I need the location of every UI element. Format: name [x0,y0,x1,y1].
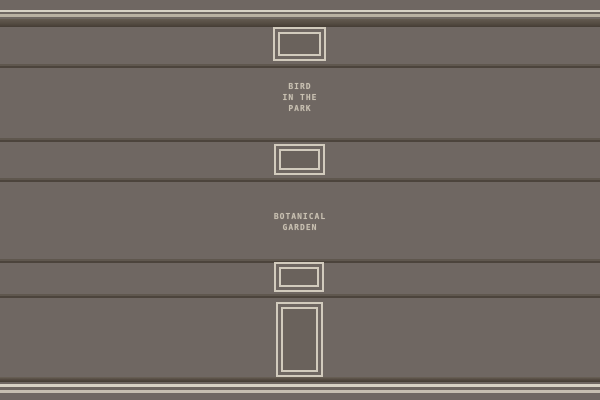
wall-seam-5 [0,294,600,298]
baseboard-stripe-upper [0,384,600,387]
wall-seam-2 [0,138,600,142]
caption-line: BOTANICAL [0,211,600,222]
wall-seam-3 [0,178,600,182]
caption-botanical-garden: BOTANICAL GARDEN [0,211,600,233]
picture-rail-stripe-lower [0,14,600,17]
baseboard-stripe-lower [0,390,600,393]
picture-rail-stripe-upper [0,10,600,12]
frame-canvas [281,307,318,372]
caption-line: IN THE [0,92,600,103]
baseboard-band [0,377,600,382]
caption-line: BIRD [0,81,600,92]
gallery-wall: BIRD IN THE PARK BOTANICAL GARDEN [0,0,600,400]
empty-picture-frame-lower[interactable] [274,262,324,292]
empty-picture-frame-middle[interactable] [274,144,325,175]
caption-line: GARDEN [0,222,600,233]
caption-bird-in-the-park: BIRD IN THE PARK [0,81,600,114]
empty-picture-frame-tall[interactable] [276,302,323,377]
frame-canvas [279,149,320,170]
frame-canvas [278,32,321,56]
crown-molding-band [0,19,600,27]
caption-line: PARK [0,103,600,114]
wall-seam-1 [0,64,600,68]
empty-picture-frame-top[interactable] [273,27,326,61]
frame-canvas [279,267,319,287]
